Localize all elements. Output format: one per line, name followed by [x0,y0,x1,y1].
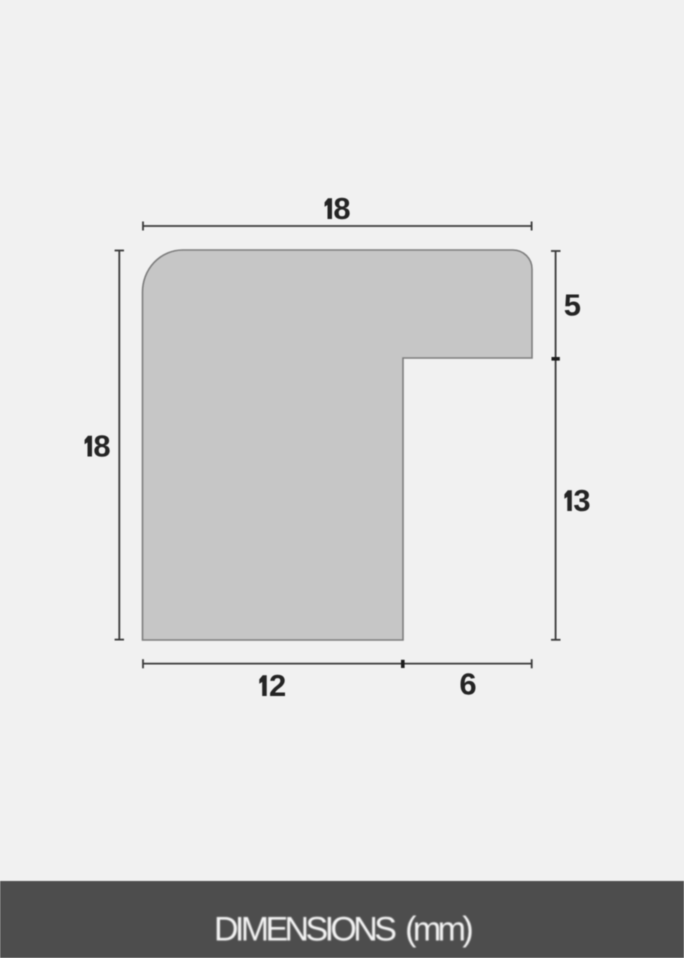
svg-text:2: 2 [269,668,286,703]
svg-text:5: 5 [564,288,581,323]
svg-text:8: 8 [333,191,350,226]
svg-text:3: 3 [573,483,590,518]
svg-text:6: 6 [459,667,476,702]
svg-text:8: 8 [93,429,110,464]
